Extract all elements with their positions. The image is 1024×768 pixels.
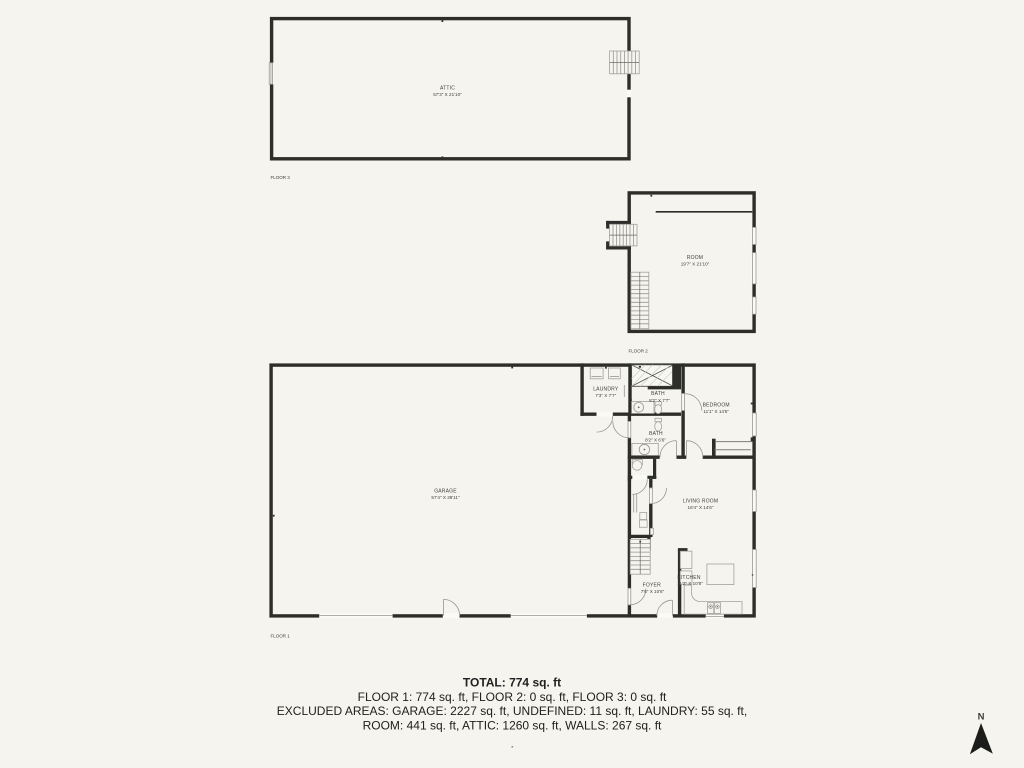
- svg-text:FLOOR 2: FLOOR 2: [629, 349, 649, 354]
- svg-text:FLOOR 3: FLOOR 3: [271, 175, 291, 180]
- svg-text:57'4" X 39'11": 57'4" X 39'11": [431, 495, 460, 500]
- svg-text:FLOOR 1: 774 sq. ft, FLOOR 2:: FLOOR 1: 774 sq. ft, FLOOR 2: 0 sq. ft, …: [358, 690, 667, 704]
- svg-text:TOTAL: 774 sq. ft: TOTAL: 774 sq. ft: [463, 676, 561, 690]
- svg-text:FOYER: FOYER: [643, 583, 661, 589]
- svg-text:8'2" X 7'7": 8'2" X 7'7": [649, 398, 670, 403]
- svg-text:LIVING ROOM: LIVING ROOM: [683, 499, 719, 505]
- svg-text:ROOM: 441 sq. ft, ATTIC: 1260: ROOM: 441 sq. ft, ATTIC: 1260 sq. ft, WA…: [363, 718, 662, 732]
- svg-text:KITCHEN: KITCHEN: [677, 575, 701, 581]
- svg-text:19'7" X 21'10": 19'7" X 21'10": [681, 262, 710, 267]
- svg-text:BEDROOM: BEDROOM: [703, 403, 730, 409]
- svg-text:7'3" X 7'7": 7'3" X 7'7": [595, 393, 616, 398]
- svg-text:8'2" X 6'6": 8'2" X 6'6": [645, 438, 666, 443]
- svg-text:11'2" X 10'8": 11'2" X 10'8": [677, 581, 703, 586]
- svg-text:ATTIC: ATTIC: [440, 86, 455, 92]
- svg-text:7'6" X 10'8": 7'6" X 10'8": [641, 589, 665, 594]
- svg-text:57'3" X 21'10": 57'3" X 21'10": [433, 92, 462, 97]
- svg-text:N: N: [978, 712, 985, 723]
- svg-text:LAUNDRY: LAUNDRY: [593, 387, 619, 393]
- svg-text:EXCLUDED AREAS: GARAGE: 2227 s: EXCLUDED AREAS: GARAGE: 2227 sq. ft, UND…: [277, 704, 747, 718]
- svg-text:BATH: BATH: [649, 431, 663, 437]
- svg-text:11'1" X 14'5": 11'1" X 14'5": [703, 409, 729, 414]
- svg-text:16'4" X 14'6": 16'4" X 14'6": [688, 505, 714, 510]
- svg-text:ROOM: ROOM: [687, 255, 703, 261]
- svg-text:GARAGE: GARAGE: [434, 488, 457, 494]
- svg-text:FLOOR 1: FLOOR 1: [271, 634, 291, 639]
- svg-text:BATH: BATH: [651, 391, 665, 397]
